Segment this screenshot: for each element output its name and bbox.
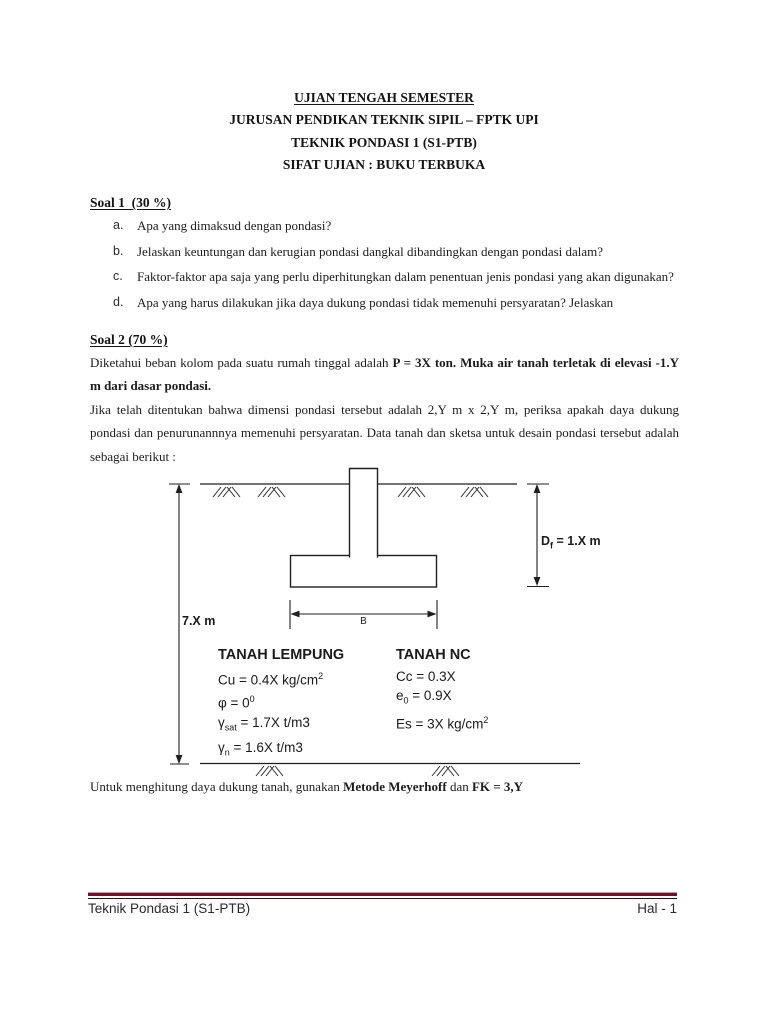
footer-course-label: Teknik Pondasi 1 (S1-PTB) [88,901,250,916]
soil-nc-title: TANAH NC [396,646,488,666]
gamma-symbol: γ [218,715,225,730]
cu-value: Cu = 0.4X kg/cm [218,672,318,687]
footing [291,556,437,588]
page-footer: Teknik Pondasi 1 (S1-PTB) Hal - 1 [88,901,677,916]
cu-line: Cu = 0.4X kg/cm2 [218,667,344,690]
closing-instruction: Untuk menghitung daya dukung tanah, guna… [90,779,690,795]
gamma-sat-subscript: sat [225,722,237,732]
phi-line: φ = 00 [218,690,344,713]
arrow-up-icon [176,484,183,493]
document-page: UJIAN TENGAH SEMESTER JURUSAN PENDIKAN T… [0,0,768,1024]
width-b-label: B [290,616,437,627]
gamma-n-line: γn = 1.6X t/m3 [218,738,344,763]
es-line: Es = 3X kg/cm2 [396,711,488,734]
footer-page-number: Hal - 1 [637,901,677,916]
arrow-down-icon [534,577,541,586]
phi-value: φ = 0 [218,695,250,710]
gamma-n-value: = 1.6X t/m3 [230,740,303,755]
foundation-diagram [0,0,768,1024]
df-label: Df = 1.X m [541,534,601,551]
soil-hatch [461,487,488,497]
arrow-down-icon [176,755,183,764]
closing-text: dan [447,779,472,794]
soil-lempung-title: TANAH LEMPUNG [218,646,344,666]
depth-total-label: 7.X m [182,614,215,628]
df-symbol: D [541,534,550,548]
gamma-sat-value: = 1.7X t/m3 [237,715,310,730]
column [350,469,378,558]
e-value: = 0.9X [409,688,452,703]
soil-hatch [258,487,285,497]
soil-hatch [256,766,283,776]
cu-sup: 2 [318,671,323,681]
phi-sup: 0 [250,694,255,704]
safety-factor: FK = 3,Y [472,779,523,794]
es-sup: 2 [483,715,488,725]
gamma-symbol: γ [218,740,225,755]
e-symbol: e [396,688,404,703]
footer-rule-thin [88,898,677,899]
soil-data-lempung: TANAH LEMPUNG Cu = 0.4X kg/cm2 φ = 00 γs… [218,646,344,763]
e0-line: e0 = 0.9X [396,686,488,711]
arrow-up-icon [534,484,541,493]
closing-text: Untuk menghitung daya dukung tanah, guna… [90,779,343,794]
soil-hatch [213,487,240,497]
gamma-sat-line: γsat = 1.7X t/m3 [218,713,344,738]
soil-data-nc: TANAH NC Cc = 0.3X e0 = 0.9X Es = 3X kg/… [396,646,488,734]
soil-hatch [398,487,425,497]
footer-rule-thick [88,892,677,896]
soil-hatch [432,766,459,776]
df-value: = 1.X m [553,534,601,548]
method-name: Metode Meyerhoff [343,779,447,794]
cc-line: Cc = 0.3X [396,667,488,687]
es-value: Es = 3X kg/cm [396,717,483,732]
